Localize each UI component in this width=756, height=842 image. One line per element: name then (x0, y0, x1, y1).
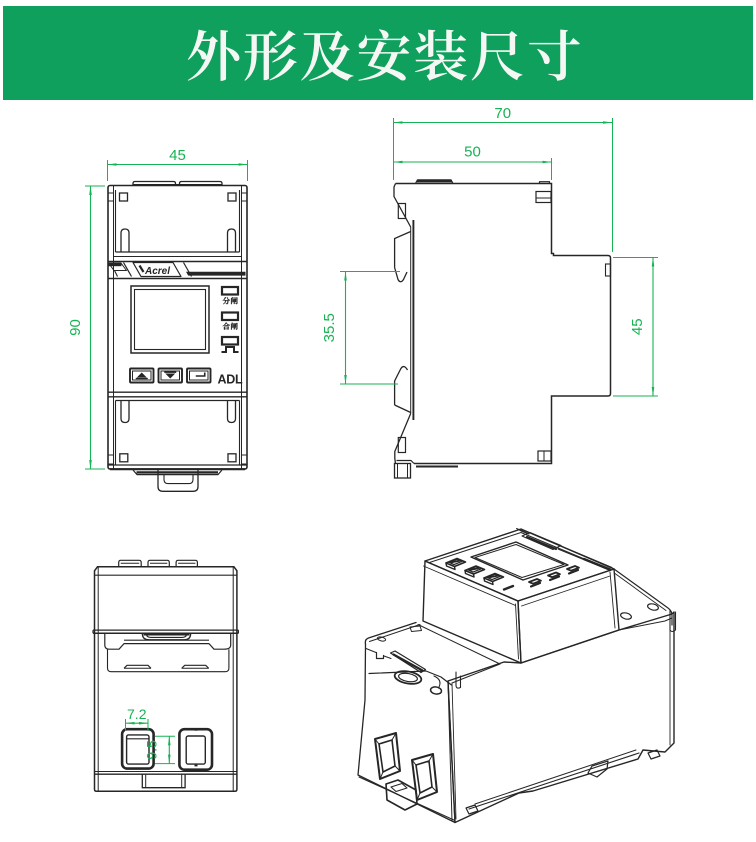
svg-text:90: 90 (67, 319, 84, 336)
svg-text:50: 50 (464, 144, 481, 161)
svg-text:ADL: ADL (218, 373, 243, 387)
svg-text:35.5: 35.5 (321, 313, 338, 342)
svg-text:45: 45 (629, 318, 646, 335)
svg-text:7.2: 7.2 (127, 706, 147, 722)
svg-text:70: 70 (494, 105, 511, 122)
svg-text:45: 45 (169, 147, 186, 164)
svg-text:9.5: 9.5 (144, 740, 160, 760)
svg-text:Acrel: Acrel (144, 266, 170, 277)
